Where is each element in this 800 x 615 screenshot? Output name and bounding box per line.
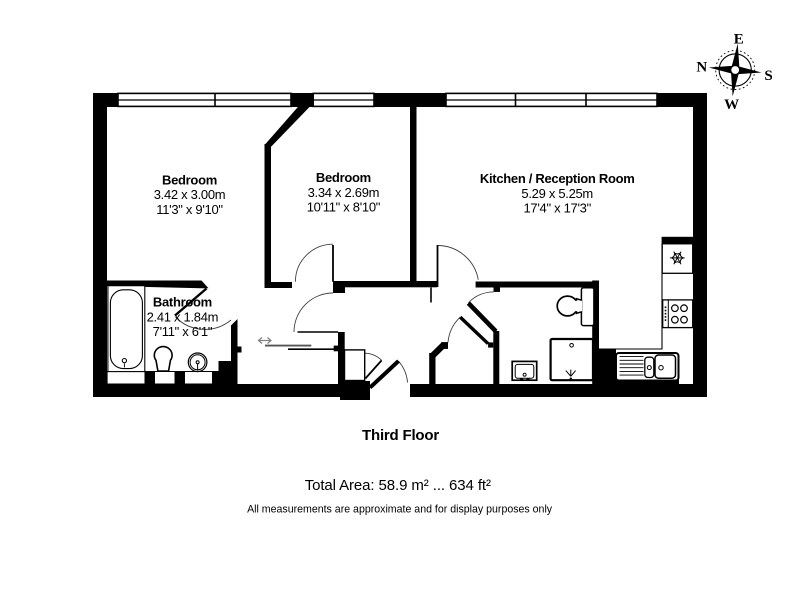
svg-text:N: N: [696, 60, 707, 76]
svg-text:Kitchen / Reception Room: Kitchen / Reception Room: [480, 171, 635, 186]
svg-text:7'11" x 6'1": 7'11" x 6'1": [153, 324, 213, 339]
svg-text:5.29 x 5.25m: 5.29 x 5.25m: [521, 186, 593, 201]
svg-text:11'3" x 9'10": 11'3" x 9'10": [156, 202, 223, 217]
svg-text:2.41 x 1.84m: 2.41 x 1.84m: [147, 309, 219, 324]
svg-text:Bathroom: Bathroom: [153, 295, 212, 310]
svg-text:All measurements are approxima: All measurements are approximate and for…: [247, 503, 553, 515]
svg-text:3.34 x 2.69m: 3.34 x 2.69m: [308, 185, 380, 200]
svg-text:17'4" x 17'3": 17'4" x 17'3": [523, 200, 591, 215]
svg-text:10'11" x 8'10": 10'11" x 8'10": [307, 200, 381, 215]
svg-text:S: S: [764, 68, 772, 84]
svg-text:Bedroom: Bedroom: [162, 173, 217, 188]
svg-text:W: W: [724, 97, 739, 113]
svg-text:Third Floor: Third Floor: [362, 427, 439, 444]
svg-text:Total Area: 58.9 m² ... 634 ft: Total Area: 58.9 m² ... 634 ft²: [305, 477, 491, 494]
svg-text:Bedroom: Bedroom: [316, 170, 371, 185]
svg-text:E: E: [734, 32, 744, 48]
svg-text:3.42 x 3.00m: 3.42 x 3.00m: [154, 187, 226, 202]
